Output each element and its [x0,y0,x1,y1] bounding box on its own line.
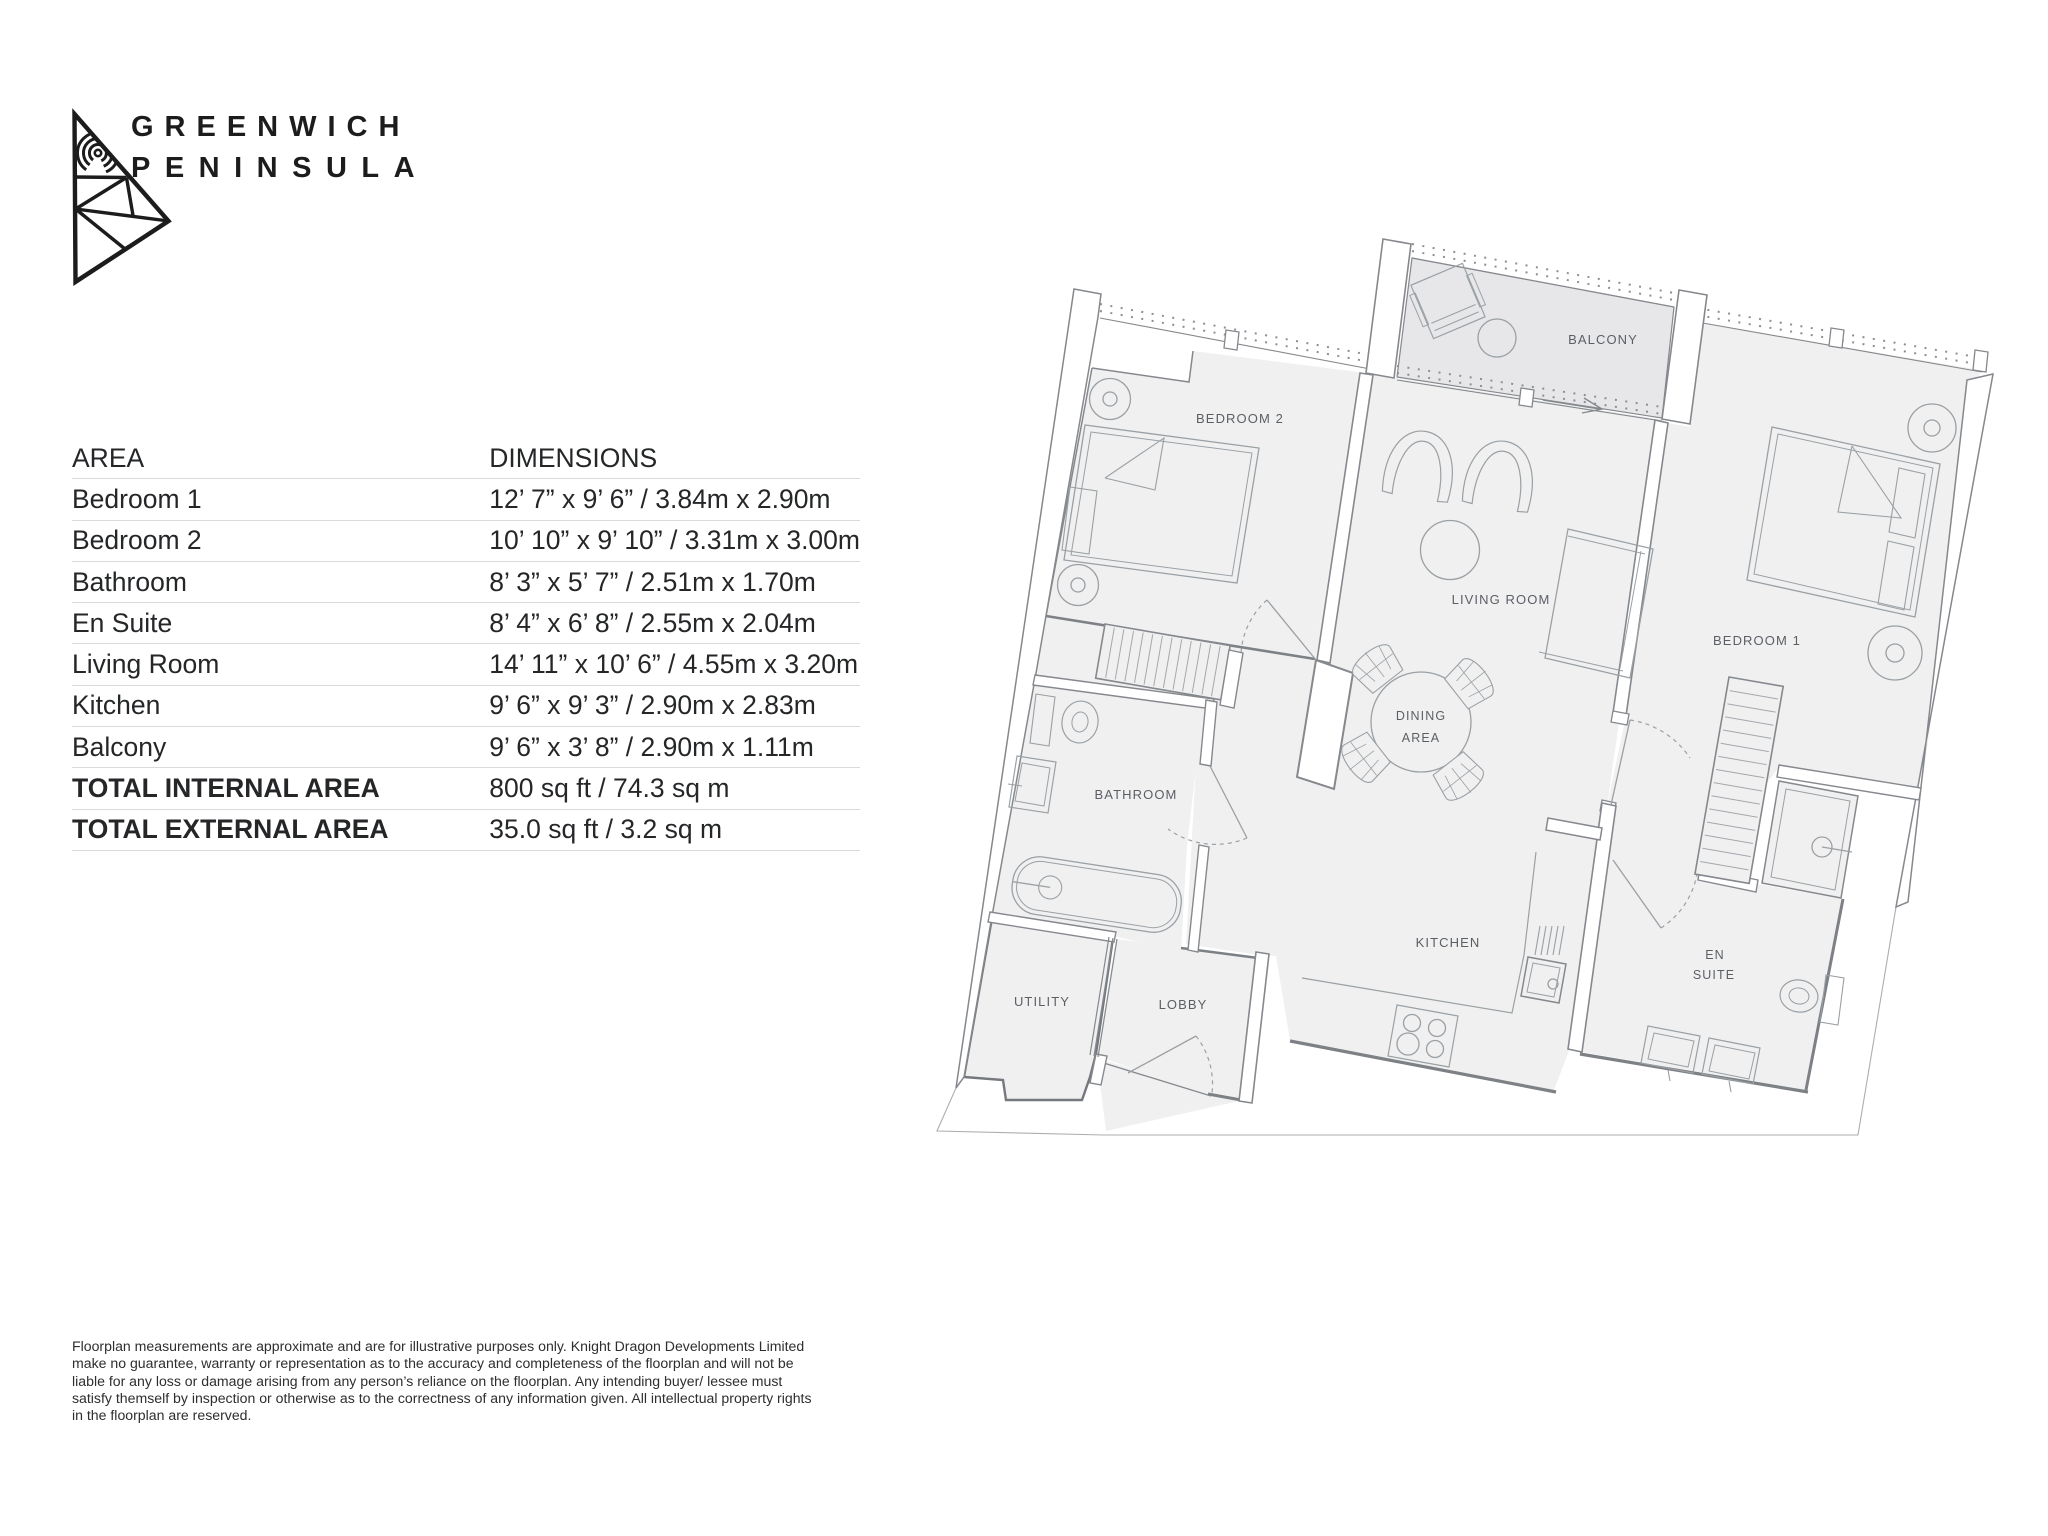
svg-text:BALCONY: BALCONY [1568,332,1638,347]
svg-text:SUITE: SUITE [1693,968,1735,982]
svg-text:DINING: DINING [1396,709,1446,723]
svg-text:LIVING ROOM: LIVING ROOM [1452,592,1551,607]
svg-text:KITCHEN: KITCHEN [1416,935,1481,950]
svg-text:BEDROOM 2: BEDROOM 2 [1196,411,1284,426]
svg-text:LOBBY: LOBBY [1159,997,1208,1012]
svg-text:BEDROOM 1: BEDROOM 1 [1713,633,1801,648]
svg-text:AREA: AREA [1402,731,1440,745]
svg-text:BATHROOM: BATHROOM [1095,787,1178,802]
svg-text:UTILITY: UTILITY [1014,994,1070,1009]
svg-text:EN: EN [1705,948,1725,962]
